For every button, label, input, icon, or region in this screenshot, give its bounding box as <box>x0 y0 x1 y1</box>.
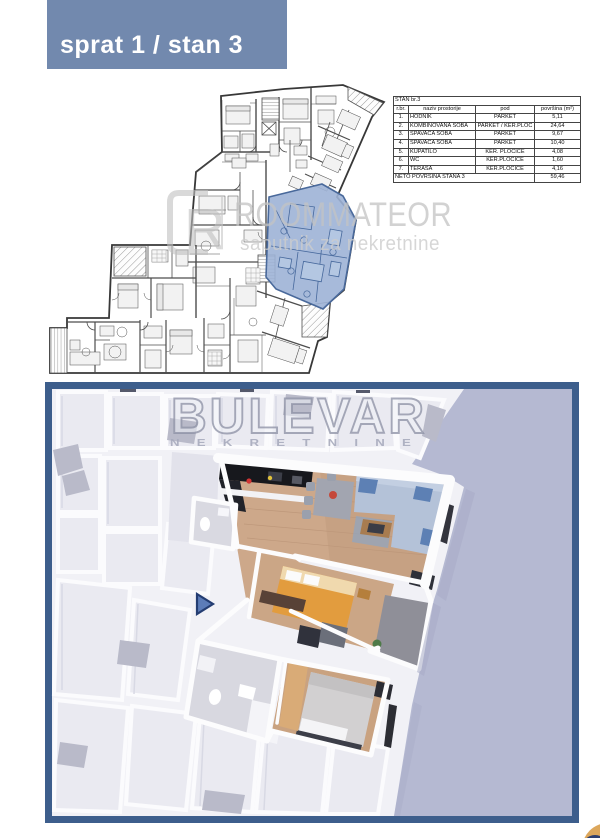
svg-text:NEKRETNINE: NEKRETNINE <box>170 438 428 449</box>
svg-text:BULEVAR: BULEVAR <box>171 388 427 444</box>
